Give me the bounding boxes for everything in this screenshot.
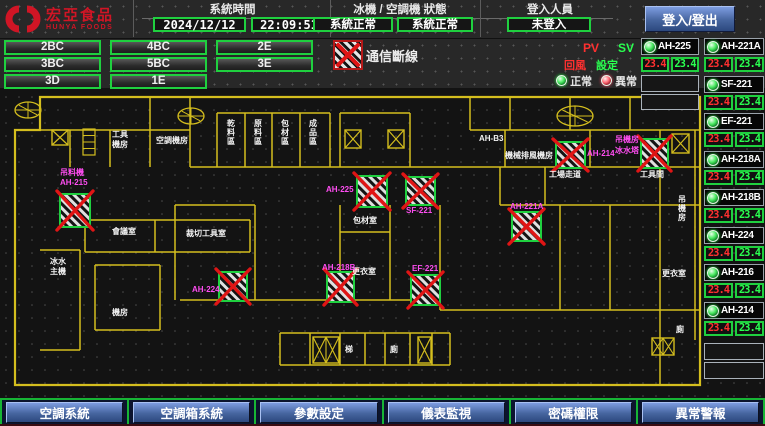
equipment-pv-value: 23.4 [704,283,733,298]
brand-logo: 宏亞食品 HUNYA FOODS [4,3,130,35]
normal-label: 正常 [570,76,592,88]
equipment-pv-value: 23.4 [704,246,733,261]
ahu-comm-fail-icon[interactable] [216,269,250,304]
equipment-pv-value: 23.4 [704,170,733,185]
device-label: AH-218B [322,263,356,272]
equipment-sv-value: 23.4 [735,321,764,336]
room-label: 梯 [345,344,353,354]
equipment-name: AH-221A [721,41,761,52]
ahu-comm-fail-icon[interactable] [57,191,93,230]
spiral-stair-icon [557,106,593,126]
device-label: AH-214 [587,149,615,158]
floor-button-3e[interactable]: 3E [216,57,313,72]
room-label: 包材室 [352,215,377,225]
equipment-name: AH-214 [721,305,754,316]
sv-row-label: 設定 [596,57,618,73]
room-label: 工具 [112,130,128,139]
equipment-led-icon [644,41,656,53]
device-label: AH-225 [326,185,354,194]
brand-mark-icon [4,4,42,34]
ahu-comm-fail-icon[interactable] [403,174,438,208]
ahu-comm-fail-icon[interactable] [638,136,671,171]
equipment-item-AH-221A[interactable]: AH-221A [704,38,764,55]
room-label: 冰水 [50,256,67,266]
device-label: 吊料機 [60,167,84,177]
device-label: 冰水塔 [615,145,640,155]
equipment-pv-value: 23.4 [704,321,733,336]
room-label: AH-B3 [479,134,504,143]
equipment-led-icon [707,230,719,242]
equipment-sv-value: 23.4 [735,170,764,185]
equipment-pv-value: 23.4 [641,57,669,72]
equipment-sv-value: 23.4 [735,95,764,110]
device-label: SF-221 [406,206,433,215]
room-label: 機械排風機房 [505,150,553,160]
equipment-sv-value: 23.4 [671,57,699,72]
ahu-comm-fail-icon[interactable] [408,272,443,308]
equipment-item-SF-221[interactable]: SF-221 [704,76,764,93]
ahu-comm-fail-icon[interactable] [354,173,390,210]
nav-ac-system-button[interactable]: 空調系統 [6,402,123,423]
comm-fail-legend-label: 通信斷線 [366,46,418,65]
bottom-nav: 空調系統 空調箱系統 參數設定 儀表監視 密碼權限 異常警報 [0,398,765,426]
normal-status-legend: 正常 [556,73,592,89]
pv-column-label: PV [583,41,599,55]
device-label: 吊機房 [615,134,639,144]
equipment-name: AH-218B [721,192,761,203]
room-label: 裁切工具室 [186,228,226,238]
login-logout-button[interactable]: 登入/登出 [645,6,735,32]
login-section: 登入人員 未登入 [480,0,619,37]
room-label: 機房 [112,307,128,317]
floor-button-3d[interactable]: 3D [4,74,101,89]
room-label: 廁 [390,344,398,354]
equipment-led-icon [707,116,719,128]
device-label: AH-224 [192,285,220,294]
room-label: 更衣室 [662,268,686,278]
pv-row-label: 回風 [564,57,586,73]
device-label: AH-221A [510,202,544,211]
equipment-pv-value: 23.4 [704,95,733,110]
nav-meter-monitor-button[interactable]: 儀表監視 [388,402,505,423]
equipment-name: AH-225 [658,41,691,52]
chiller-status-value: 系統正常 [313,17,393,32]
room-label: 乾料區 [227,118,235,146]
abnormal-led-icon [601,75,612,86]
equipment-item-AH-218B[interactable]: AH-218B [704,189,764,206]
equipment-led-icon [707,79,719,91]
device-label: AH-215 [60,178,88,187]
equipment-led-icon [707,192,719,204]
floor-button-5bc[interactable]: 5BC [110,57,207,72]
floor-button-3bc[interactable]: 3BC [4,57,101,72]
equipment-item-AH-224[interactable]: AH-224 [704,227,764,244]
normal-led-icon [556,75,567,86]
brand-name-en: HUNYA FOODS [46,24,114,31]
brand-name: 宏亞食品 [46,8,114,24]
room-label: 會議室 [111,226,136,236]
room-label: 工具間 [640,170,664,179]
equipment-led-icon [707,41,719,53]
nav-alarm-button[interactable]: 異常警報 [642,402,759,423]
equipment-led-icon [707,305,719,317]
device-label: EF-221 [412,264,439,273]
room-label: 工場走道 [549,169,581,179]
nav-password-auth-button[interactable]: 密碼權限 [515,402,632,423]
ahu-comm-fail-icon[interactable] [509,209,544,244]
equipment-item-AH-214[interactable]: AH-214 [704,302,764,319]
ahu-status-value: 系統正常 [397,17,473,32]
login-user-value: 未登入 [507,17,591,32]
equipment-sv-value: 23.4 [735,57,764,72]
room-label: 原料區 [254,119,262,146]
equipment-led-icon [707,154,719,166]
ahu-comm-fail-icon[interactable] [553,139,588,171]
equipment-sv-value: 23.4 [735,208,764,223]
floor-button-2bc[interactable]: 2BC [4,40,101,55]
equipment-item-AH-218A[interactable]: AH-218A [704,151,764,168]
room-label: 機房 [112,139,128,149]
sv-column-label: SV [618,41,634,55]
room-label: 廁 [676,324,684,334]
equipment-pv-value: 23.4 [704,132,733,147]
equipment-item-AH-225[interactable]: AH-225 [641,38,699,55]
nav-parameter-settings-button[interactable]: 參數設定 [260,402,377,423]
spiral-stair-icon [15,102,41,118]
floor-button-4bc[interactable]: 4BC [110,40,207,55]
room-label: 主機 [50,266,66,276]
equipment-name: EF-221 [721,116,752,127]
equipment-name: SF-221 [721,79,752,90]
room-label: 更衣室 [352,266,376,276]
abnormal-status-legend: 異常 [601,73,637,89]
floor-selector: 2BC 4BC 2E 3BC 5BC 3E 3D 1E [4,40,313,89]
equipment-name: AH-216 [721,267,754,278]
nav-ahu-system-button[interactable]: 空調箱系統 [133,402,250,423]
equipment-sv-value: 23.4 [735,283,764,298]
room-label: 空調機房 [156,135,188,145]
comm-fail-legend-icon [333,40,363,70]
header: 宏亞食品 HUNYA FOODS 系統時間 2024/12/12 22:09:5… [0,0,765,39]
room-label: 成品區 [309,118,317,146]
equipment-name: AH-218A [721,154,761,165]
system-date-value: 2024/12/12 [153,17,246,32]
abnormal-label: 異常 [615,76,637,88]
floor-button-1e[interactable]: 1E [110,74,207,89]
room-label: 包材區 [280,118,289,146]
machine-status-section: 冰機 / 空調機 狀態 系統正常 系統正常 [330,0,481,37]
floor-button-2e[interactable]: 2E [216,40,313,55]
room-label: 吊機房 [678,195,686,222]
equipment-led-icon [707,267,719,279]
equipment-item-AH-216[interactable]: AH-216 [704,264,764,281]
equipment-pv-value: 23.4 [704,208,733,223]
equipment-empty-slot [704,343,764,360]
equipment-empty-slot [704,362,764,379]
equipment-empty-slot [641,75,699,92]
equipment-item-EF-221[interactable]: EF-221 [704,113,764,130]
floorplan: 工具機房空調機房AH-B3機械排風機房工場走道工具間會議室裁切工具室包材室更衣室… [0,88,765,400]
equipment-pv-value: 23.4 [704,57,733,72]
equipment-empty-slot [641,94,699,110]
equipment-name: AH-224 [721,230,754,241]
equipment-sv-value: 23.4 [735,132,764,147]
spiral-stair-icon [178,108,204,124]
system-time-section: 系統時間 2024/12/12 22:09:51 [133,0,331,37]
equipment-sv-value: 23.4 [735,246,764,261]
